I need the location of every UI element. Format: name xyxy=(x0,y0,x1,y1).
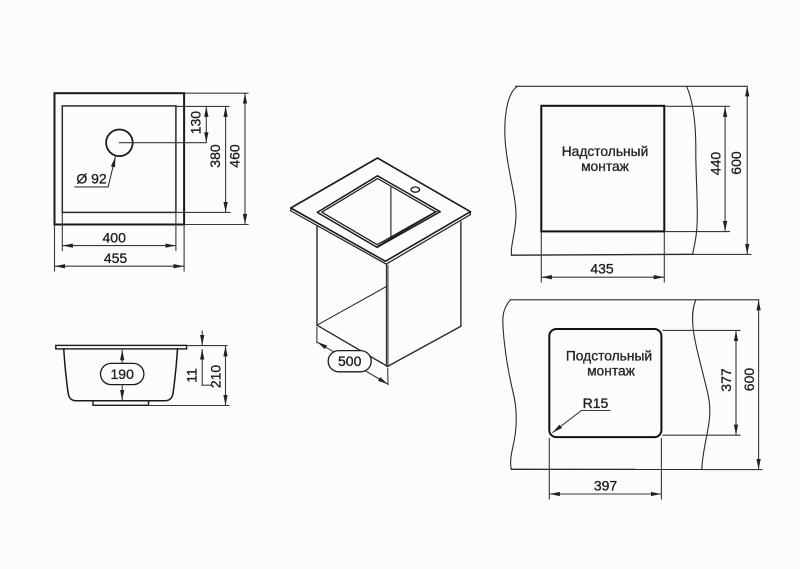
svg-text:397: 397 xyxy=(594,478,618,494)
svg-text:440: 440 xyxy=(708,152,724,176)
svg-text:11: 11 xyxy=(183,368,199,383)
svg-text:380: 380 xyxy=(207,144,223,168)
svg-text:монтаж: монтаж xyxy=(581,159,630,174)
svg-text:600: 600 xyxy=(728,151,744,175)
svg-text:Надстольный: Надстольный xyxy=(562,144,649,159)
svg-text:435: 435 xyxy=(590,261,614,277)
svg-text:460: 460 xyxy=(227,144,243,168)
svg-text:R15: R15 xyxy=(583,395,609,411)
svg-text:500: 500 xyxy=(338,353,362,369)
svg-text:монтаж: монтаж xyxy=(587,364,636,379)
svg-text:Подстольный: Подстольный xyxy=(566,349,652,364)
svg-text:130: 130 xyxy=(187,111,203,135)
svg-text:400: 400 xyxy=(103,230,127,246)
svg-text:377: 377 xyxy=(718,368,734,392)
svg-text:210: 210 xyxy=(208,365,224,389)
svg-text:Ø 92: Ø 92 xyxy=(76,171,107,187)
svg-text:600: 600 xyxy=(741,368,757,392)
svg-text:190: 190 xyxy=(111,366,135,382)
svg-text:455: 455 xyxy=(104,250,128,266)
